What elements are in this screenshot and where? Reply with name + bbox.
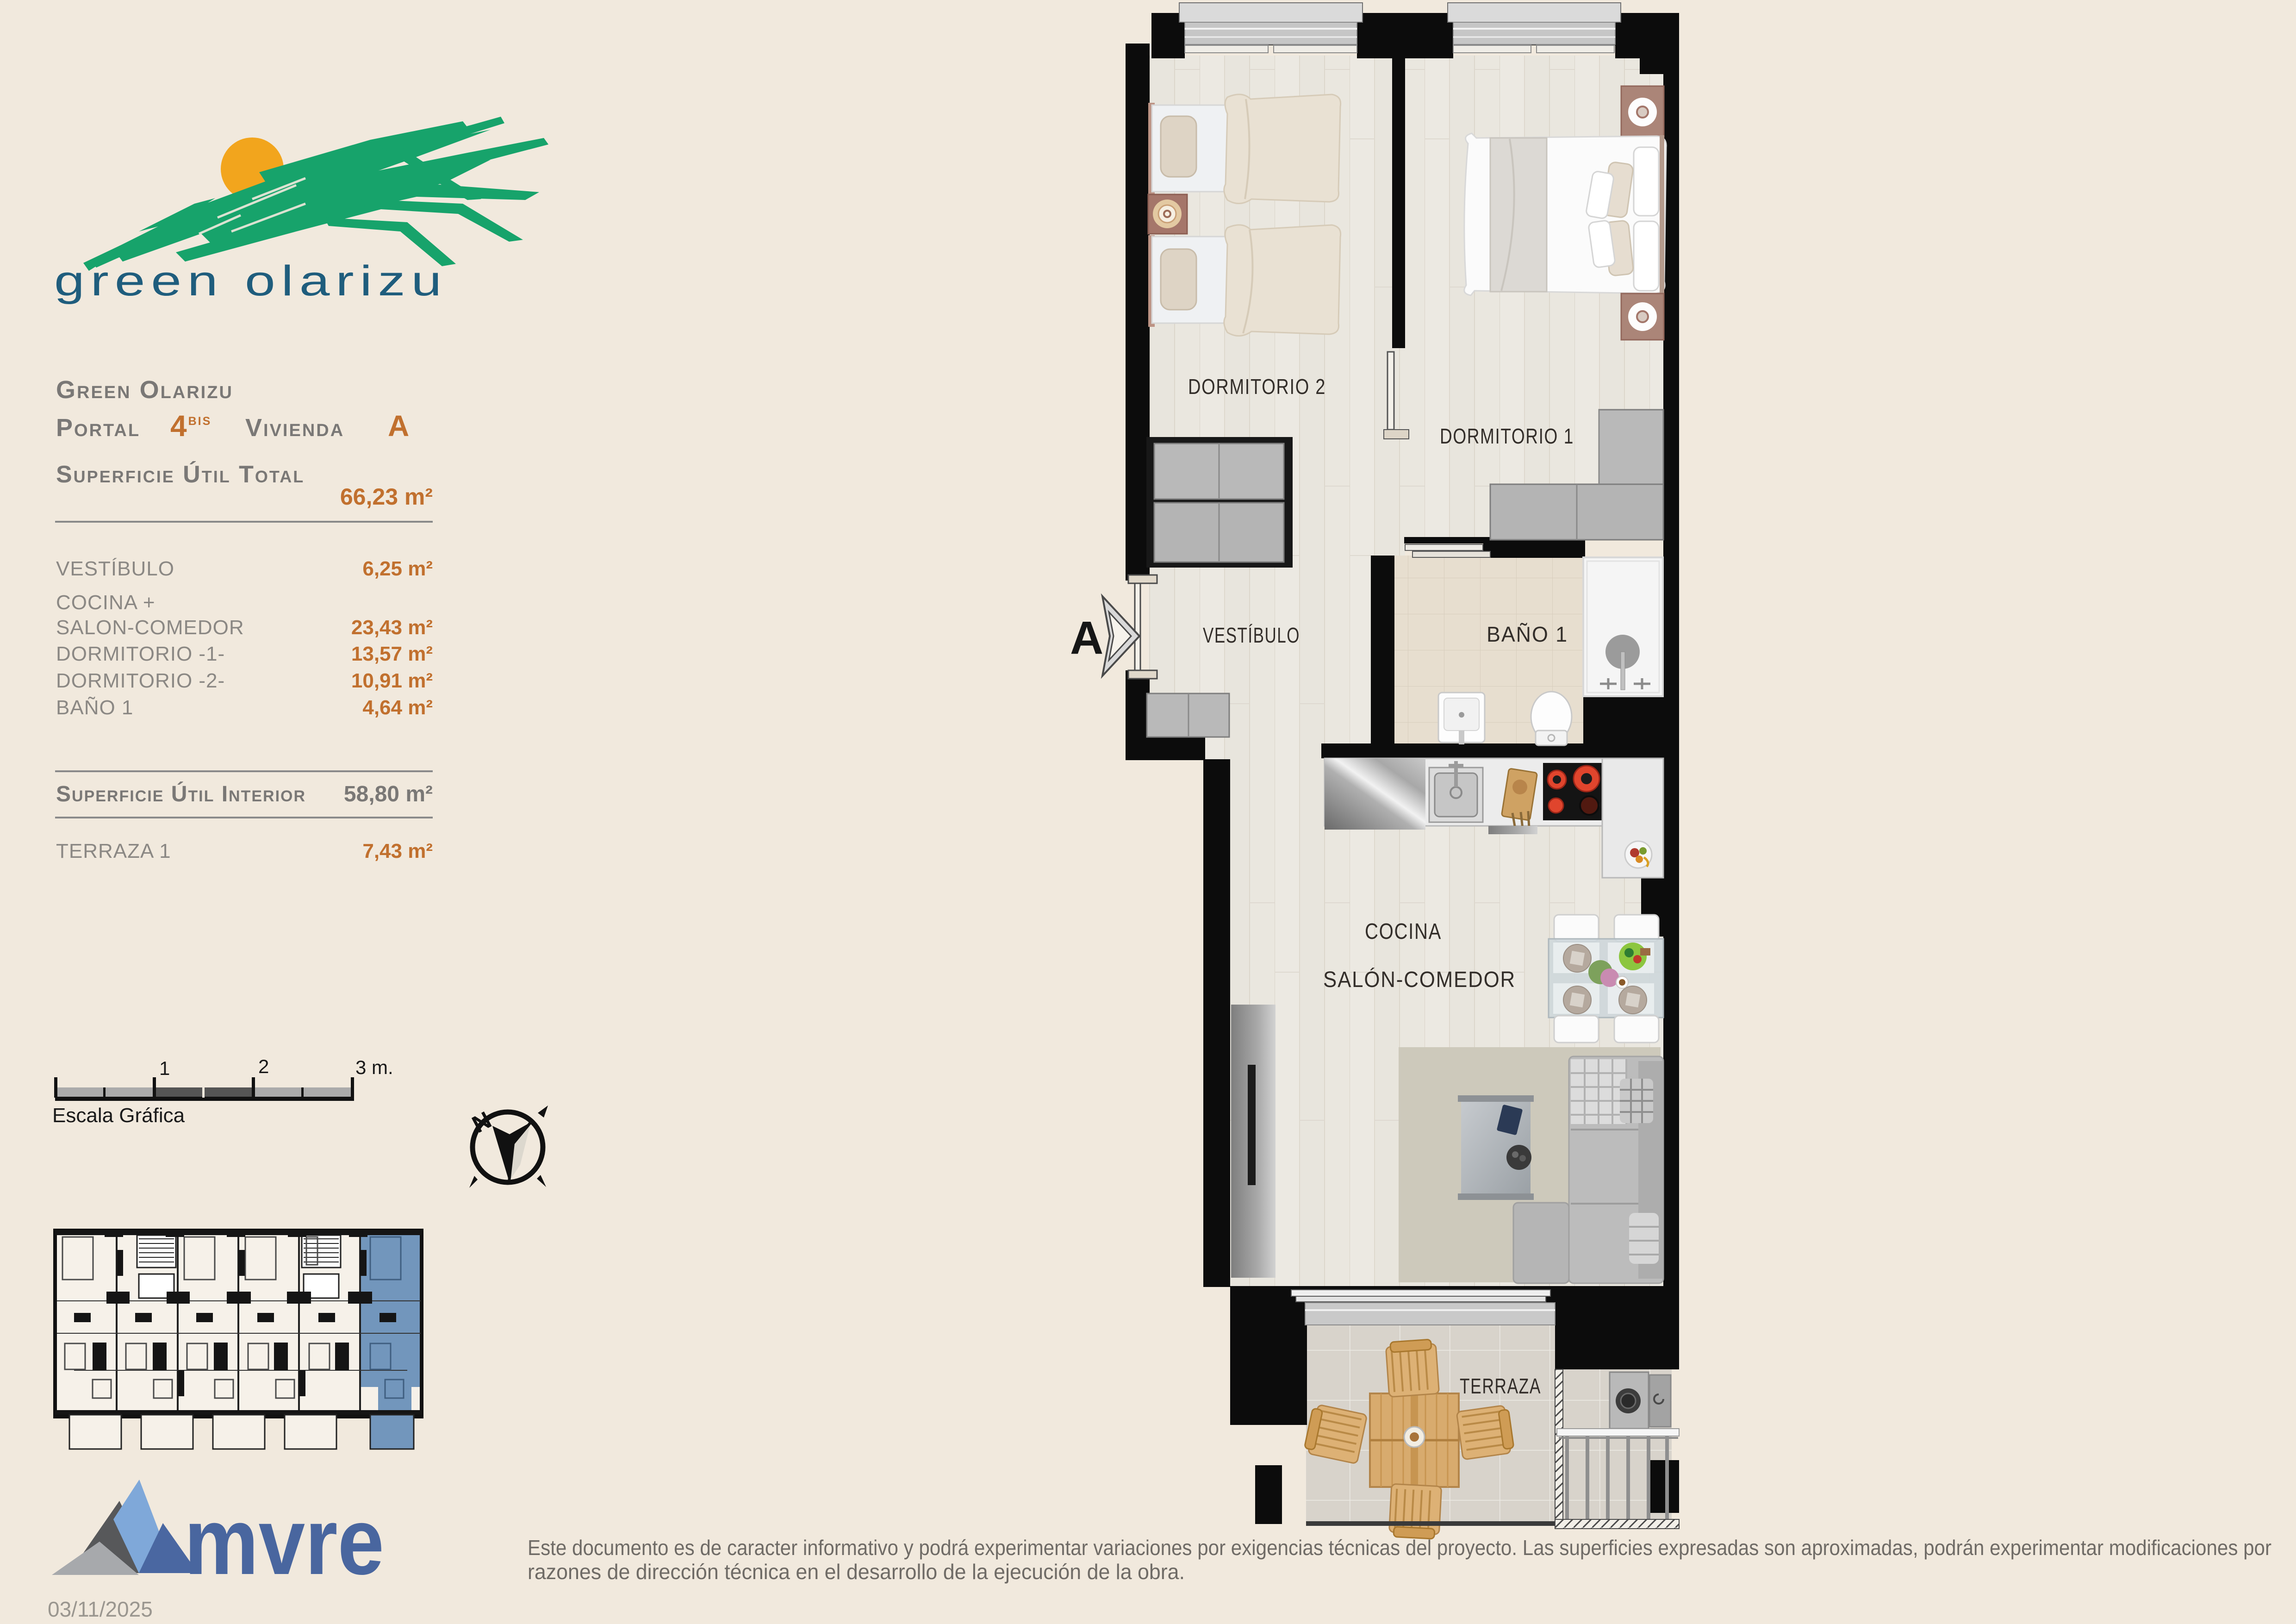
- svg-text:3 m.: 3 m.: [355, 1056, 393, 1078]
- svg-text:mvre: mvre: [184, 1488, 384, 1594]
- svg-text:Superficie Útil Total: Superficie Útil Total: [56, 461, 305, 488]
- svg-text:DORMITORIO 1: DORMITORIO 1: [1440, 424, 1574, 448]
- svg-text:Escala Gráfica: Escala Gráfica: [52, 1104, 185, 1127]
- svg-text:razones de dirección técnica e: razones de dirección técnica en el desar…: [528, 1560, 1185, 1584]
- svg-text:VESTÍBULO: VESTÍBULO: [56, 557, 174, 580]
- svg-text:TERRAZA: TERRAZA: [1460, 1374, 1541, 1398]
- svg-text:7,43 m²: 7,43 m²: [362, 840, 433, 862]
- svg-text:SALÓN-COMEDOR: SALÓN-COMEDOR: [1323, 967, 1516, 992]
- svg-text:1: 1: [159, 1057, 170, 1079]
- svg-text:03/11/2025: 03/11/2025: [48, 1597, 153, 1621]
- svg-text:TERRAZA 1: TERRAZA 1: [56, 840, 171, 862]
- svg-text:66,23 m²: 66,23 m²: [340, 484, 433, 510]
- svg-text:green olarizu: green olarizu: [54, 257, 448, 305]
- svg-text:A: A: [1070, 612, 1103, 664]
- svg-text:DORMITORIO 2: DORMITORIO 2: [1188, 375, 1326, 399]
- svg-text:Este documento es de caracter: Este documento es de caracter informativ…: [528, 1536, 2271, 1560]
- svg-text:Green Olarizu: Green Olarizu: [56, 376, 233, 404]
- svg-text:VESTÍBULO: VESTÍBULO: [1203, 623, 1300, 647]
- svg-text:SALON-COMEDOR: SALON-COMEDOR: [56, 616, 244, 639]
- svg-text:13,57 m²: 13,57 m²: [351, 643, 433, 665]
- svg-text:6,25 m²: 6,25 m²: [362, 557, 433, 580]
- svg-text:COCINA: COCINA: [1365, 919, 1442, 944]
- svg-text:DORMITORIO -2-: DORMITORIO -2-: [56, 669, 225, 692]
- svg-text:23,43 m²: 23,43 m²: [351, 616, 433, 639]
- svg-text:BAÑO 1: BAÑO 1: [56, 696, 133, 719]
- svg-text:4,64 m²: 4,64 m²: [362, 696, 433, 719]
- svg-text:2: 2: [258, 1056, 269, 1077]
- svg-text:58,80 m²: 58,80 m²: [344, 782, 433, 806]
- svg-text:10,91 m²: 10,91 m²: [351, 669, 433, 692]
- svg-text:COCINA +: COCINA +: [56, 591, 156, 614]
- svg-text:BAÑO 1: BAÑO 1: [1487, 622, 1568, 646]
- svg-text:Superficie Útil Interior: Superficie Útil Interior: [56, 781, 306, 806]
- svg-text:DORMITORIO -1-: DORMITORIO -1-: [56, 643, 225, 665]
